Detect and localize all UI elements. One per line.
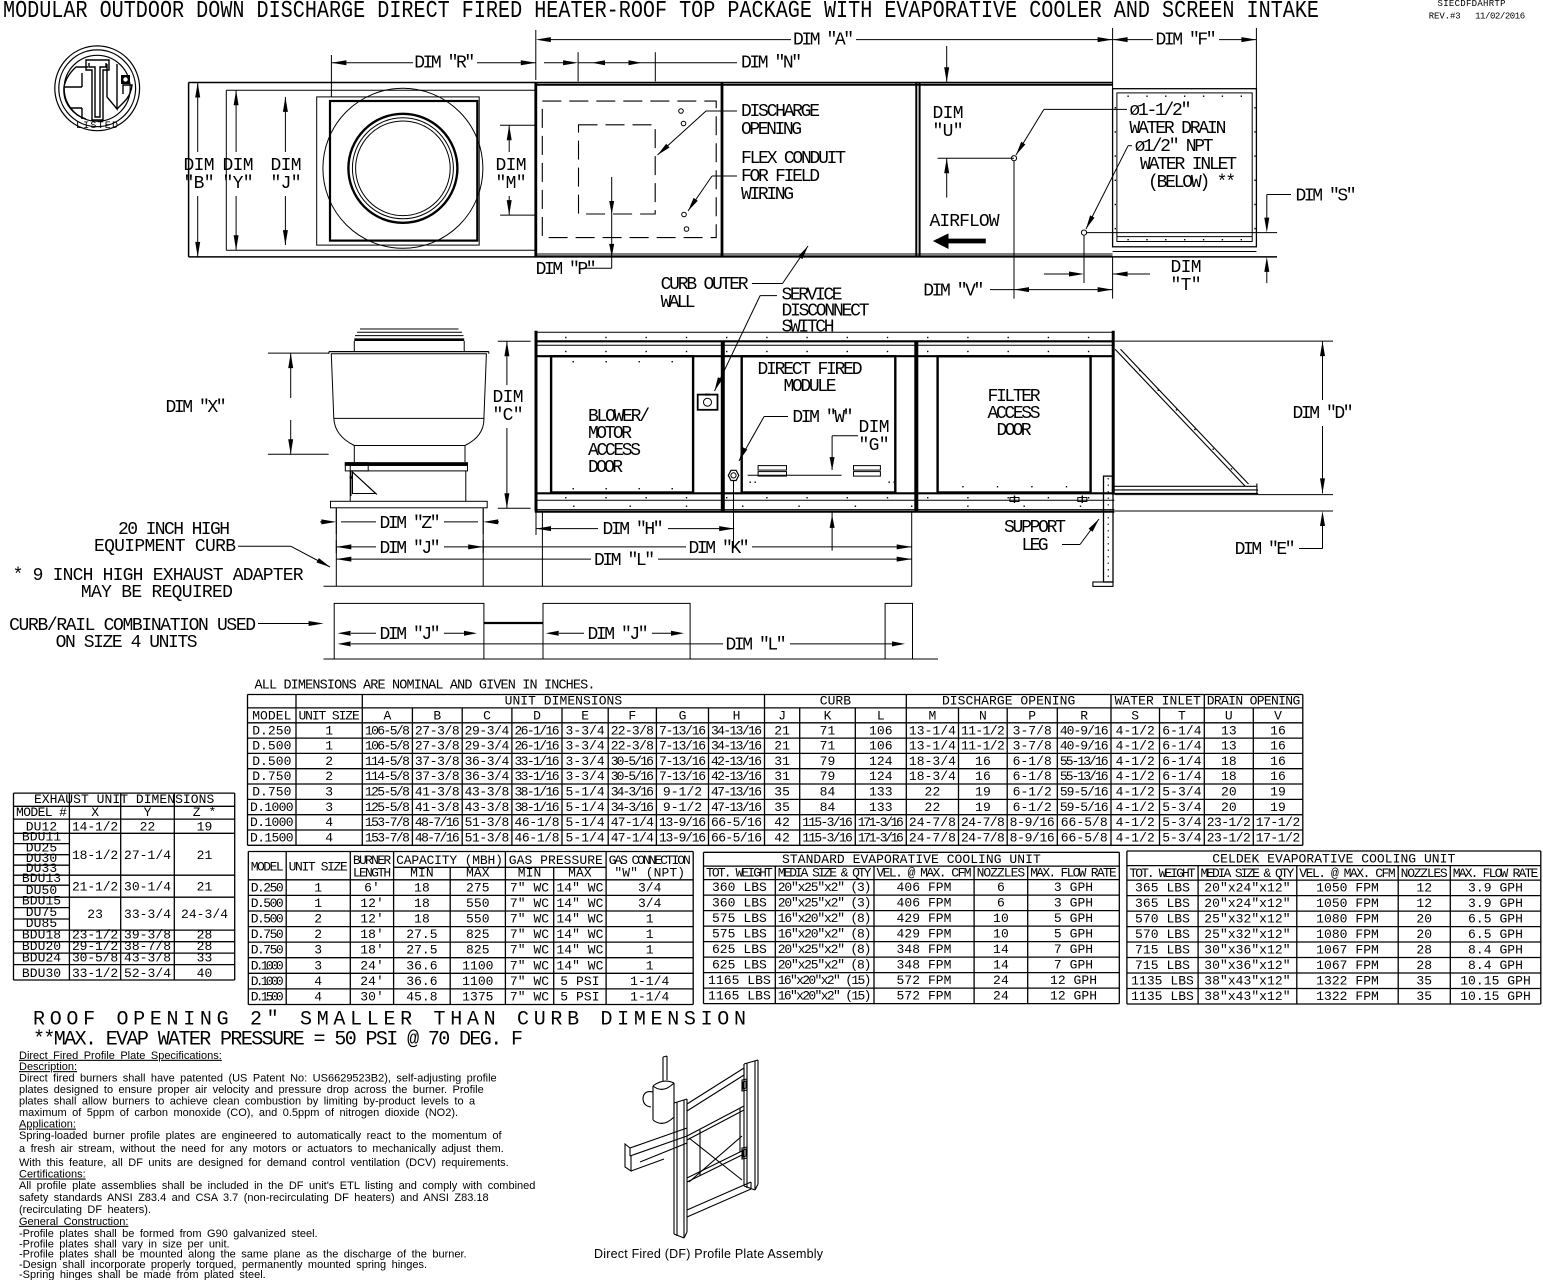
svg-text:21: 21 <box>197 848 213 863</box>
svg-text:106-5/8: 106-5/8 <box>365 723 410 738</box>
svg-text:J: J <box>778 708 786 723</box>
svg-text:3/4: 3/4 <box>638 880 662 895</box>
svg-text:TOT. WEIGHT: TOT. WEIGHT <box>706 865 773 880</box>
svg-text:2: 2 <box>314 912 322 927</box>
svg-text:30': 30' <box>360 990 384 1005</box>
svg-text:29-3/4: 29-3/4 <box>465 739 510 754</box>
svg-text:3-7/8: 3-7/8 <box>1013 723 1052 738</box>
svg-text:38-1/16: 38-1/16 <box>514 785 559 800</box>
svg-text:114-5/8: 114-5/8 <box>365 769 410 784</box>
svg-text:16"x20"x2" (15): 16"x20"x2" (15) <box>778 989 872 1004</box>
svg-text:WATER INLET: WATER INLET <box>1140 155 1237 175</box>
svg-text:Y: Y <box>144 805 152 820</box>
svg-text:24-7/8: 24-7/8 <box>961 831 1005 846</box>
svg-text:66-5/16: 66-5/16 <box>711 831 762 846</box>
svg-text:30-5/8: 30-5/8 <box>72 951 118 966</box>
svg-text:22: 22 <box>925 785 941 800</box>
svg-text:V: V <box>1274 708 1282 723</box>
svg-text:"T": "T" <box>1171 276 1202 296</box>
svg-text:FOR FIELD: FOR FIELD <box>741 167 820 187</box>
svg-text:EQUIPMENT CURB: EQUIPMENT CURB <box>94 537 236 557</box>
svg-text:LENGTH: LENGTH <box>353 865 391 880</box>
svg-text:48-7/16: 48-7/16 <box>415 831 460 846</box>
svg-text:28: 28 <box>1416 943 1432 958</box>
svg-text:625 LBS: 625 LBS <box>712 958 767 973</box>
svg-text:DIM: DIM <box>496 156 527 176</box>
svg-text:6.5 GPH: 6.5 GPH <box>1468 927 1523 942</box>
svg-text:40: 40 <box>197 966 213 981</box>
svg-text:Direct fired burners shall hav: Direct fired burners shall have patented… <box>19 1073 497 1085</box>
svg-text:4: 4 <box>325 815 333 830</box>
svg-text:825: 825 <box>466 943 490 958</box>
svg-text:18: 18 <box>414 896 430 911</box>
svg-text:WALL: WALL <box>661 293 696 313</box>
svg-text:34-13/16: 34-13/16 <box>711 723 762 738</box>
svg-text:SWITCH: SWITCH <box>782 318 835 338</box>
svg-text:UNIT SIZE: UNIT SIZE <box>298 708 359 723</box>
svg-text:MODULAR OUTDOOR DOWN DISCHARGE: MODULAR OUTDOOR DOWN DISCHARGE DIRECT FI… <box>3 0 1319 25</box>
svg-text:1322 FPM: 1322 FPM <box>1316 989 1379 1004</box>
svg-text:DIM "K": DIM "K" <box>689 539 750 559</box>
svg-text:7" WC: 7" WC <box>510 990 549 1005</box>
svg-text:55-13/16: 55-13/16 <box>1060 769 1109 784</box>
svg-text:45.8: 45.8 <box>406 990 437 1005</box>
svg-text:DIM "J": DIM "J" <box>380 539 441 559</box>
svg-text:35: 35 <box>774 785 790 800</box>
svg-text:1135 LBS: 1135 LBS <box>1131 974 1194 989</box>
svg-text:1080 FPM: 1080 FPM <box>1316 912 1379 927</box>
svg-text:37-3/8: 37-3/8 <box>415 769 460 784</box>
svg-text:5 GPH: 5 GPH <box>1054 911 1093 926</box>
svg-text:3/4: 3/4 <box>638 896 662 911</box>
svg-text:23-1/2: 23-1/2 <box>1207 831 1251 846</box>
svg-text:115-3/16: 115-3/16 <box>802 815 853 830</box>
svg-text:1322 FPM: 1322 FPM <box>1316 974 1379 989</box>
svg-text:MODEL: MODEL <box>251 859 284 874</box>
svg-text:D.1500: D.1500 <box>250 831 294 846</box>
svg-text:MIN: MIN <box>410 865 434 880</box>
svg-text:1: 1 <box>325 739 333 754</box>
svg-text:125-5/8: 125-5/8 <box>365 785 410 800</box>
svg-text:13-9/16: 13-9/16 <box>659 815 706 830</box>
svg-text:D.750: D.750 <box>251 943 284 958</box>
svg-text:47-1/4: 47-1/4 <box>611 831 654 846</box>
svg-text:LISTED: LISTED <box>76 121 118 132</box>
svg-text:348 FPM: 348 FPM <box>897 942 952 957</box>
svg-text:ON SIZE 4 UNITS: ON SIZE 4 UNITS <box>56 633 198 653</box>
svg-text:8.4 GPH: 8.4 GPH <box>1468 958 1523 973</box>
svg-text:66-5/16: 66-5/16 <box>711 815 762 830</box>
svg-text:24': 24' <box>360 974 384 989</box>
svg-text:D.1000: D.1000 <box>250 800 294 815</box>
svg-text:17-1/2: 17-1/2 <box>1256 815 1301 830</box>
svg-text:21: 21 <box>774 739 790 754</box>
svg-text:DIM "D": DIM "D" <box>1293 404 1354 424</box>
svg-text:K: K <box>824 708 832 723</box>
svg-text:P: P <box>1028 708 1036 723</box>
svg-text:16"x20"x2" (8): 16"x20"x2" (8) <box>778 927 872 942</box>
svg-text:106: 106 <box>869 739 893 754</box>
svg-text:30"x36"x12": 30"x36"x12" <box>1204 943 1290 958</box>
svg-text:66-5/8: 66-5/8 <box>1061 831 1108 846</box>
svg-text:71: 71 <box>820 739 836 754</box>
svg-text:(BELOW) **: (BELOW) ** <box>1148 173 1236 193</box>
svg-text:MEDIA SIZE & QTY: MEDIA SIZE & QTY <box>1201 866 1295 881</box>
svg-text:NOZZLES: NOZZLES <box>977 865 1026 880</box>
svg-text:12: 12 <box>1416 881 1432 896</box>
svg-text:29-3/4: 29-3/4 <box>465 723 510 738</box>
svg-text:11-1/2: 11-1/2 <box>961 723 1005 738</box>
svg-text:19: 19 <box>1270 785 1286 800</box>
svg-text:30-1/4: 30-1/4 <box>124 880 171 895</box>
svg-text:40-9/16: 40-9/16 <box>1060 723 1109 738</box>
svg-text:71: 71 <box>820 723 836 738</box>
svg-text:124: 124 <box>869 769 893 784</box>
svg-text:1067 FPM: 1067 FPM <box>1316 943 1379 958</box>
svg-text:D: D <box>533 708 541 723</box>
svg-text:Direct Fired Profile Plate Spe: Direct Fired Profile Plate Specification… <box>19 1050 222 1062</box>
svg-text:22-3/8: 22-3/8 <box>611 723 654 738</box>
svg-text:UNIT SIZE: UNIT SIZE <box>289 859 348 874</box>
svg-text:5 GPH: 5 GPH <box>1054 927 1093 942</box>
svg-text:5-3/4: 5-3/4 <box>1162 831 1201 846</box>
svg-text:"C": "C" <box>493 406 524 426</box>
svg-text:5-1/4: 5-1/4 <box>566 785 605 800</box>
svg-text:1165 LBS: 1165 LBS <box>708 989 771 1004</box>
svg-text:575 LBS: 575 LBS <box>712 927 767 942</box>
svg-text:41-3/8: 41-3/8 <box>415 785 460 800</box>
svg-text:14" WC: 14" WC <box>556 880 603 895</box>
svg-text:4-1/2: 4-1/2 <box>1116 739 1155 754</box>
svg-text:550: 550 <box>466 912 490 927</box>
svg-text:DIM "W": DIM "W" <box>792 408 853 428</box>
svg-text:3 GPH: 3 GPH <box>1054 880 1093 895</box>
svg-text:6-1/4: 6-1/4 <box>1162 769 1201 784</box>
svg-text:7-13/16: 7-13/16 <box>659 769 706 784</box>
svg-text:CURB: CURB <box>820 694 852 709</box>
svg-text:General Construction:: General Construction: <box>19 1216 128 1228</box>
svg-text:11/02/2016: 11/02/2016 <box>1475 12 1525 22</box>
svg-text:DIM: DIM <box>859 418 890 438</box>
svg-text:MAX. FLOW RATE: MAX. FLOW RATE <box>1453 866 1539 881</box>
svg-text:Description:: Description: <box>19 1061 77 1073</box>
svg-text:575 LBS: 575 LBS <box>712 911 767 926</box>
svg-text:6-1/2: 6-1/2 <box>1013 785 1052 800</box>
svg-text:8-9/16: 8-9/16 <box>1010 815 1055 830</box>
svg-text:16: 16 <box>1270 739 1286 754</box>
svg-text:43-3/8: 43-3/8 <box>465 800 510 815</box>
svg-text:DIM "R": DIM "R" <box>414 54 475 74</box>
svg-text:133: 133 <box>869 785 893 800</box>
svg-text:9-1/2: 9-1/2 <box>663 785 702 800</box>
svg-text:6-1/8: 6-1/8 <box>1013 754 1052 769</box>
svg-text:BDU24: BDU24 <box>22 951 61 966</box>
svg-text:18-3/4: 18-3/4 <box>909 754 956 769</box>
svg-text:DIM "P": DIM "P" <box>536 260 597 280</box>
svg-text:275: 275 <box>466 880 490 895</box>
svg-text:106-5/8: 106-5/8 <box>365 739 410 754</box>
svg-text:55-13/16: 55-13/16 <box>1060 754 1109 769</box>
svg-text:OPENING: OPENING <box>741 120 802 140</box>
svg-text:U: U <box>1225 708 1233 723</box>
svg-text:16: 16 <box>1270 723 1286 738</box>
svg-text:20"x25"x2" (3): 20"x25"x2" (3) <box>778 896 872 911</box>
svg-text:"Y": "Y" <box>223 174 254 194</box>
svg-text:38"x43"x12": 38"x43"x12" <box>1204 989 1290 1004</box>
svg-text:4-1/2: 4-1/2 <box>1116 754 1155 769</box>
svg-text:125-5/8: 125-5/8 <box>365 800 410 815</box>
svg-text:18-3/4: 18-3/4 <box>909 769 956 784</box>
svg-text:16: 16 <box>1270 769 1286 784</box>
svg-text:plates designed to ensure prop: plates designed to ensure proper air vel… <box>19 1084 484 1096</box>
svg-text:79: 79 <box>820 754 836 769</box>
svg-text:DISCHARGE OPENING: DISCHARGE OPENING <box>942 694 1075 709</box>
svg-text:47-1/4: 47-1/4 <box>611 815 654 830</box>
svg-text:31: 31 <box>774 769 790 784</box>
svg-text:16: 16 <box>975 754 991 769</box>
svg-text:D.750: D.750 <box>252 769 291 784</box>
svg-text:1080 FPM: 1080 FPM <box>1316 927 1379 942</box>
svg-text:21: 21 <box>774 723 790 738</box>
svg-text:7" WC: 7" WC <box>510 927 549 942</box>
svg-text:18: 18 <box>414 912 430 927</box>
svg-text:6: 6 <box>997 880 1005 895</box>
svg-text:30-5/16: 30-5/16 <box>611 754 654 769</box>
svg-text:2: 2 <box>314 927 322 942</box>
svg-text:33: 33 <box>197 951 213 966</box>
svg-text:CELDEK EVAPORATIVE COOLING UNI: CELDEK EVAPORATIVE COOLING UNIT <box>1212 851 1455 866</box>
svg-text:24-7/8: 24-7/8 <box>909 815 956 830</box>
svg-text:D.500: D.500 <box>251 896 284 911</box>
svg-text:572 FPM: 572 FPM <box>897 973 952 988</box>
svg-text:35: 35 <box>1416 974 1432 989</box>
svg-text:360 LBS: 360 LBS <box>712 880 767 895</box>
svg-text:47-13/16: 47-13/16 <box>711 800 762 815</box>
svg-text:MODEL #: MODEL # <box>16 805 67 820</box>
svg-text:Z *: Z * <box>193 805 217 820</box>
svg-text:23: 23 <box>87 907 103 922</box>
svg-text:33-1/16: 33-1/16 <box>514 769 559 784</box>
svg-text:20: 20 <box>1221 800 1237 815</box>
svg-text:1375: 1375 <box>462 990 493 1005</box>
svg-text:171-3/16: 171-3/16 <box>858 831 904 846</box>
svg-text:DIM: DIM <box>184 156 215 176</box>
svg-text:429 FPM: 429 FPM <box>897 927 952 942</box>
svg-text:D.1000: D.1000 <box>251 974 284 989</box>
svg-text:13: 13 <box>1221 723 1237 738</box>
svg-text:D.500: D.500 <box>252 754 291 769</box>
svg-text:MODULE: MODULE <box>784 377 837 397</box>
svg-text:DOOR: DOOR <box>588 458 623 478</box>
svg-text:B: B <box>433 708 441 723</box>
svg-text:42-13/16: 42-13/16 <box>711 754 762 769</box>
svg-text:26-1/16: 26-1/16 <box>514 723 559 738</box>
svg-text:43-3/8: 43-3/8 <box>124 951 171 966</box>
svg-text:AIRFLOW: AIRFLOW <box>930 212 1000 232</box>
svg-text:13-9/16: 13-9/16 <box>659 831 706 846</box>
svg-text:D.750: D.750 <box>252 785 291 800</box>
svg-text:22: 22 <box>925 800 941 815</box>
svg-text:Certifications:: Certifications: <box>19 1169 86 1181</box>
svg-text:1: 1 <box>314 880 322 895</box>
svg-text:10.15 GPH: 10.15 GPH <box>1460 974 1531 989</box>
svg-text:M: M <box>928 708 936 723</box>
svg-text:"G": "G" <box>859 436 890 456</box>
svg-text:1: 1 <box>646 958 654 973</box>
svg-text:625 LBS: 625 LBS <box>712 942 767 957</box>
svg-text:42: 42 <box>774 831 790 846</box>
svg-text:DIM: DIM <box>493 388 524 408</box>
svg-text:3: 3 <box>314 958 322 973</box>
svg-text:28: 28 <box>1416 958 1432 973</box>
svg-text:23-1/2: 23-1/2 <box>1207 815 1251 830</box>
svg-text:35: 35 <box>774 800 790 815</box>
svg-text:3.9 GPH: 3.9 GPH <box>1468 896 1523 911</box>
svg-text:59-5/16: 59-5/16 <box>1060 785 1109 800</box>
svg-text:DIM "F": DIM "F" <box>1156 31 1217 51</box>
svg-text:42-13/16: 42-13/16 <box>711 769 762 784</box>
svg-text:DIM "H": DIM "H" <box>603 520 664 540</box>
svg-text:59-5/16: 59-5/16 <box>1060 800 1109 815</box>
svg-text:7 GPH: 7 GPH <box>1054 942 1093 957</box>
svg-text:MODEL: MODEL <box>252 708 291 723</box>
svg-text:A: A <box>383 708 391 723</box>
svg-text:12 GPH: 12 GPH <box>1050 989 1097 1004</box>
svg-text:VEL. @ MAX. CFM: VEL. @ MAX. CFM <box>876 865 971 880</box>
svg-text:3: 3 <box>325 785 333 800</box>
svg-text:7" WC: 7" WC <box>510 943 549 958</box>
svg-text:MAX: MAX <box>568 865 592 880</box>
svg-text:19: 19 <box>975 800 991 815</box>
svg-text:21-1/2: 21-1/2 <box>72 880 118 895</box>
svg-text:DIM "A": DIM "A" <box>793 31 854 51</box>
svg-text:3: 3 <box>314 943 322 958</box>
svg-text:14" WC: 14" WC <box>556 896 603 911</box>
svg-text:40-9/16: 40-9/16 <box>1060 739 1109 754</box>
svg-text:10.15 GPH: 10.15 GPH <box>1460 989 1531 1004</box>
svg-text:DIM "S": DIM "S" <box>1296 187 1357 207</box>
svg-text:4-1/2: 4-1/2 <box>1116 769 1155 784</box>
svg-text:DIM "Z": DIM "Z" <box>380 514 441 534</box>
svg-text:7-13/16: 7-13/16 <box>659 739 706 754</box>
svg-text:5-1/4: 5-1/4 <box>566 800 605 815</box>
svg-text:All profile plate assemblies s: All profile plate assemblies shall be in… <box>19 1180 535 1192</box>
svg-text:DIM "E": DIM "E" <box>1235 540 1296 560</box>
svg-text:48-7/16: 48-7/16 <box>415 815 460 830</box>
svg-text:MAY BE REQUIRED: MAY BE REQUIRED <box>81 583 233 603</box>
svg-text:18: 18 <box>414 880 430 895</box>
svg-text:115-3/16: 115-3/16 <box>802 831 853 846</box>
svg-text:13-1/4: 13-1/4 <box>909 723 956 738</box>
svg-text:4-1/2: 4-1/2 <box>1116 831 1155 846</box>
svg-text:2: 2 <box>325 754 333 769</box>
svg-text:20"x25"x2" (3): 20"x25"x2" (3) <box>778 880 872 895</box>
svg-text:7" WC: 7" WC <box>510 880 549 895</box>
svg-text:MIN: MIN <box>518 865 542 880</box>
svg-text:2: 2 <box>325 769 333 784</box>
svg-text:1165 LBS: 1165 LBS <box>708 973 771 988</box>
svg-text:20"x25"x2" (8): 20"x25"x2" (8) <box>778 942 872 957</box>
svg-text:S: S <box>1131 708 1139 723</box>
svg-text:18': 18' <box>360 943 384 958</box>
svg-text:D.1500: D.1500 <box>251 990 284 1005</box>
svg-text:**MAX. EVAP WATER PRESSURE = 5: **MAX. EVAP WATER PRESSURE = 50 PSI @ 70… <box>33 1029 523 1052</box>
svg-text:51-3/8: 51-3/8 <box>465 815 510 830</box>
svg-text:4-1/2: 4-1/2 <box>1116 800 1155 815</box>
svg-text:5-3/4: 5-3/4 <box>1162 785 1201 800</box>
svg-text:DIM "J": DIM "J" <box>380 625 441 645</box>
svg-text:WATER INLET: WATER INLET <box>1115 694 1201 709</box>
svg-text:Spring-loaded burner profile p: Spring-loaded burner profile plates are … <box>19 1130 502 1142</box>
svg-text:24-3/4: 24-3/4 <box>181 907 228 922</box>
svg-text:18: 18 <box>1221 769 1237 784</box>
svg-text:(recirculating DF heaters).: (recirculating DF heaters). <box>19 1204 151 1216</box>
svg-text:"B": "B" <box>184 174 215 194</box>
svg-text:36.6: 36.6 <box>406 974 437 989</box>
svg-text:With this feature, all DF unit: With this feature, all DF units are desi… <box>19 1157 509 1169</box>
svg-text:84: 84 <box>820 785 836 800</box>
svg-text:365 LBS: 365 LBS <box>1135 881 1190 896</box>
svg-text:33-3/4: 33-3/4 <box>124 907 171 922</box>
svg-text:20: 20 <box>1416 927 1432 942</box>
svg-text:66-5/8: 66-5/8 <box>1061 815 1108 830</box>
svg-text:R: R <box>1080 708 1088 723</box>
svg-text:plates shall allow burners to: plates shall allow burners to achieve cl… <box>19 1096 476 1108</box>
svg-text:3.9 GPH: 3.9 GPH <box>1468 881 1523 896</box>
svg-text:8-9/16: 8-9/16 <box>1010 831 1055 846</box>
svg-text:X: X <box>91 805 99 820</box>
svg-text:7 GPH: 7 GPH <box>1054 958 1093 973</box>
svg-text:6-1/2: 6-1/2 <box>1013 800 1052 815</box>
svg-text:8.4 GPH: 8.4 GPH <box>1468 943 1523 958</box>
svg-text:3: 3 <box>325 800 333 815</box>
svg-text:20: 20 <box>1416 912 1432 927</box>
svg-text:38-1/16: 38-1/16 <box>514 800 559 815</box>
svg-text:24-7/8: 24-7/8 <box>909 831 956 846</box>
svg-text:79: 79 <box>820 769 836 784</box>
svg-text:19: 19 <box>1270 800 1286 815</box>
svg-text:6-1/4: 6-1/4 <box>1162 723 1201 738</box>
svg-text:"M": "M" <box>496 174 527 194</box>
svg-text:27-3/8: 27-3/8 <box>415 739 460 754</box>
svg-text:19: 19 <box>197 819 213 834</box>
svg-text:14" WC: 14" WC <box>556 912 603 927</box>
svg-text:51-3/8: 51-3/8 <box>465 831 510 846</box>
svg-text:3-3/4: 3-3/4 <box>566 754 605 769</box>
svg-text:LEG: LEG <box>1022 536 1049 556</box>
svg-text:1050 FPM: 1050 FPM <box>1316 896 1379 911</box>
svg-text:5-3/4: 5-3/4 <box>1162 800 1201 815</box>
svg-text:20"x24"x12": 20"x24"x12" <box>1204 881 1290 896</box>
svg-text:27-3/8: 27-3/8 <box>415 723 460 738</box>
svg-text:429 FPM: 429 FPM <box>897 911 952 926</box>
svg-text:1: 1 <box>325 723 333 738</box>
svg-text:REV.#3: REV.#3 <box>1429 12 1461 22</box>
svg-text:12': 12' <box>360 912 384 927</box>
svg-text:"U": "U" <box>933 122 964 142</box>
svg-text:H: H <box>733 708 741 723</box>
svg-text:27-1/4: 27-1/4 <box>124 848 171 863</box>
svg-text:18: 18 <box>1221 754 1237 769</box>
svg-text:4: 4 <box>325 831 333 846</box>
svg-text:DIM "L": DIM "L" <box>726 635 787 655</box>
svg-text:7-13/16: 7-13/16 <box>659 754 706 769</box>
svg-text:6-1/4: 6-1/4 <box>1162 739 1201 754</box>
svg-text:WIRING: WIRING <box>741 185 794 205</box>
svg-text:133: 133 <box>869 800 893 815</box>
svg-text:FLEX CONDUIT: FLEX CONDUIT <box>741 149 846 169</box>
svg-text:124: 124 <box>869 754 893 769</box>
